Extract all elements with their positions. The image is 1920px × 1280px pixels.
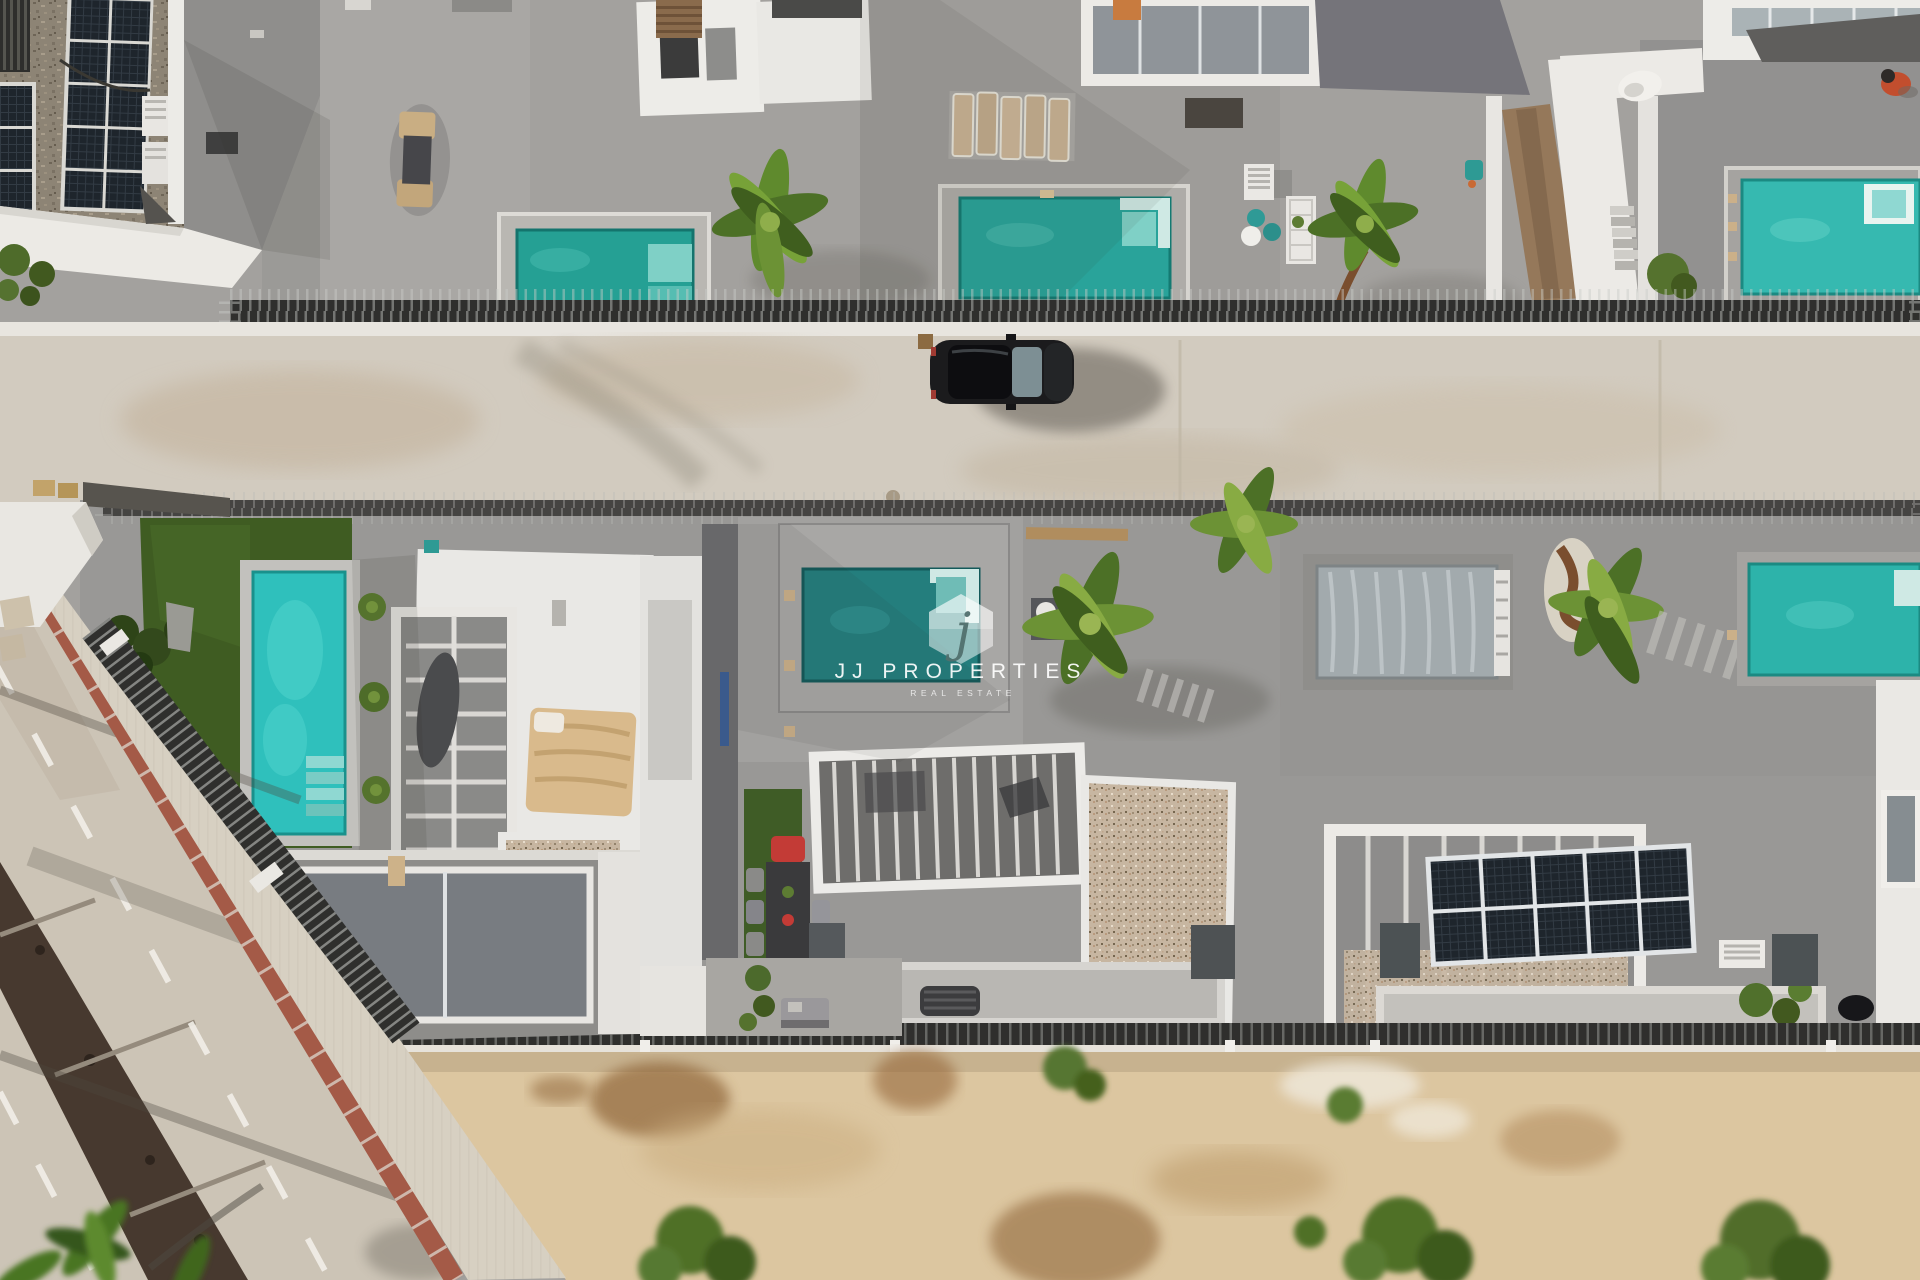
street bbox=[0, 334, 1920, 506]
pool-garden bbox=[240, 560, 360, 846]
orange-towel bbox=[1113, 0, 1141, 20]
glass-balcony-building bbox=[1087, 0, 1530, 95]
terrace-doormat bbox=[1185, 98, 1243, 128]
bottom-center-patio bbox=[640, 958, 902, 1036]
white-wall-window bbox=[1876, 680, 1920, 1040]
dried-patch bbox=[1500, 1110, 1620, 1170]
suv-windshield bbox=[1012, 347, 1042, 397]
solar-array-roof bbox=[1425, 843, 1696, 967]
watermark-tagline-text: REAL ESTATE bbox=[910, 688, 1016, 698]
sand-spot bbox=[530, 1076, 590, 1104]
manhole-square bbox=[918, 334, 933, 349]
street-top-drain bbox=[0, 300, 1920, 336]
slatted-pergola-roof bbox=[814, 747, 1084, 888]
watermark-brand-text: JJ PROPERTIES bbox=[835, 660, 1088, 683]
wood-beam bbox=[1026, 527, 1128, 541]
teal-robot-2 bbox=[424, 540, 439, 553]
bottom-drain bbox=[398, 1034, 1920, 1055]
salt-patch-2 bbox=[1390, 1102, 1470, 1138]
white-buildings-top bbox=[636, 0, 871, 116]
aerial-photo: j JJ PROPERTIES REAL ESTATE bbox=[0, 0, 1920, 1280]
canopy-daybed bbox=[525, 707, 636, 816]
sand-lot bbox=[404, 1046, 1920, 1280]
pool-right-bottomrow bbox=[1727, 552, 1920, 686]
pool-3 bbox=[1724, 166, 1920, 310]
solar-array-left-edge bbox=[0, 82, 36, 216]
tan-curtain bbox=[388, 856, 405, 886]
kerb-stone-1 bbox=[33, 480, 55, 496]
white-building-top-right bbox=[1703, 0, 1920, 62]
sand-brown-patch bbox=[1150, 1150, 1330, 1210]
garden-rock bbox=[166, 602, 194, 652]
grey-utility-box bbox=[781, 998, 829, 1028]
blue-object bbox=[720, 672, 729, 746]
covered-pool bbox=[1303, 554, 1513, 690]
black-object bbox=[1838, 995, 1874, 1021]
dried-bush-2 bbox=[873, 1050, 957, 1110]
sand-shade bbox=[640, 1110, 880, 1190]
solar-array-top-left bbox=[60, 0, 153, 214]
kerb-stone-2 bbox=[58, 483, 78, 498]
aerial-photo-canvas: j JJ PROPERTIES REAL ESTATE bbox=[0, 0, 1920, 1280]
